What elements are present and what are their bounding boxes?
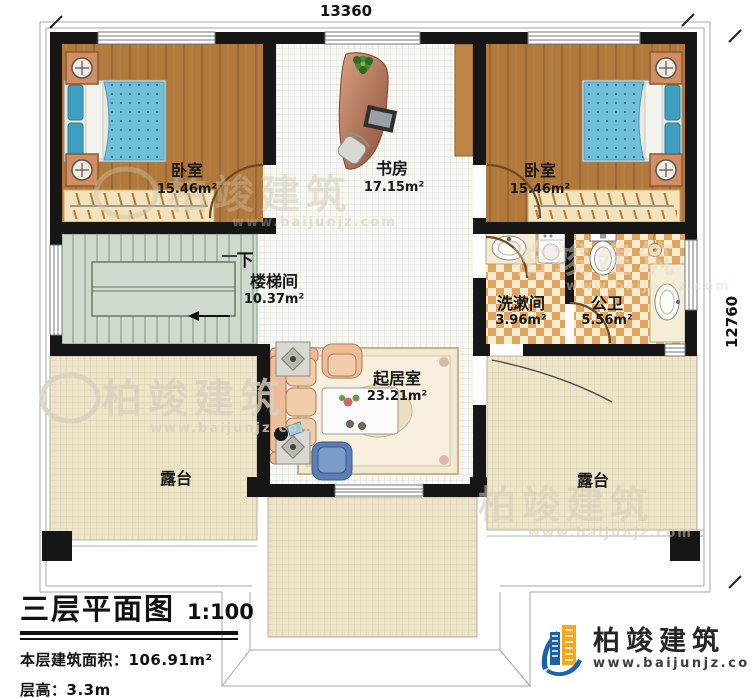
bookcase [455, 44, 473, 156]
room-label-terrace-right: 露台 [577, 471, 609, 490]
window [50, 245, 62, 335]
room-label-washroom: 洗漱间 [497, 294, 545, 313]
room-label-bedroom-left: 卧室 [171, 161, 203, 180]
svg-text:柏竣建筑: 柏竣建筑 [478, 483, 654, 527]
nightstand [650, 52, 682, 84]
svg-text:23.21m²: 23.21m² [367, 389, 427, 404]
floor-plan-page: 柏竣建筑 www.baijunjz.com 柏竣建筑 www.baijunjz.… [0, 0, 750, 698]
dimension-right: 12760 [723, 296, 741, 348]
svg-text:www.baijunjz.com: www.baijunjz.com [232, 215, 397, 230]
svg-text:www.baijunjz.com: www.baijunjz.com [150, 421, 315, 436]
armchair [322, 344, 362, 378]
svg-text:3.96m²: 3.96m² [495, 313, 546, 328]
room-label-bedroom-right: 卧室 [524, 161, 556, 180]
room-label-stairwell: 楼梯间 [250, 272, 298, 291]
logo-building-icon [536, 620, 584, 678]
balcony-floor [268, 497, 477, 637]
column [247, 477, 270, 497]
column [42, 531, 72, 561]
svg-text:5.56m²: 5.56m² [581, 313, 632, 328]
nightstand [650, 154, 682, 186]
room-label-study: 书房 [376, 159, 408, 178]
svg-text:15.46m²: 15.46m² [510, 182, 570, 197]
window [685, 240, 697, 310]
room-label-terrace-left: 露台 [160, 469, 192, 488]
title-block: 三层平面图 1:100 本层建筑面积：106.91m² 层高：3.3m [20, 586, 260, 698]
window [528, 32, 640, 44]
side-table [276, 342, 310, 376]
window [665, 344, 685, 356]
svg-text:www.baijunjz.com: www.baijunjz.com [566, 279, 731, 294]
title-underline [20, 631, 238, 640]
bed [64, 80, 166, 162]
floor-height-value: 3.3m [67, 681, 111, 698]
bed [582, 80, 682, 162]
dimension-top: 13360 [320, 2, 372, 20]
stairwell-area [62, 234, 257, 344]
logo-company-name: 柏竣建筑 [593, 627, 750, 657]
window [98, 32, 215, 44]
company-logo: 柏竣建筑 www.baijunjz.com [536, 620, 750, 678]
nightstand [66, 52, 98, 84]
living-room-furniture [270, 342, 458, 480]
svg-text:17.15m²: 17.15m² [364, 180, 424, 195]
svg-text:15.46m²: 15.46m² [157, 182, 217, 197]
room-label-bathroom: 公卫 [591, 294, 623, 313]
floor-height-line: 层高：3.3m [20, 679, 260, 698]
nightstand [66, 154, 98, 186]
armchair-blue [312, 442, 352, 480]
sliding-door [335, 485, 423, 496]
stair-direction-label: 下 [237, 251, 254, 271]
plan-title: 三层平面图 [20, 586, 175, 628]
floor-area-value: 106.91m² [129, 651, 213, 669]
floor-area-line: 本层建筑面积：106.91m² [20, 649, 260, 670]
room-label-living-room: 起居室 [372, 369, 421, 388]
plan-scale: 1:100 [187, 600, 254, 624]
svg-text:柏竣建筑: 柏竣建筑 [512, 240, 680, 281]
svg-text:10.37m²: 10.37m² [244, 292, 304, 307]
svg-text:柏竣建筑: 柏竣建筑 [102, 376, 286, 422]
window [325, 32, 420, 44]
svg-text:www.baijunjz.com: www.baijunjz.com [528, 526, 693, 541]
logo-website: www.baijunjz.com [593, 656, 750, 671]
